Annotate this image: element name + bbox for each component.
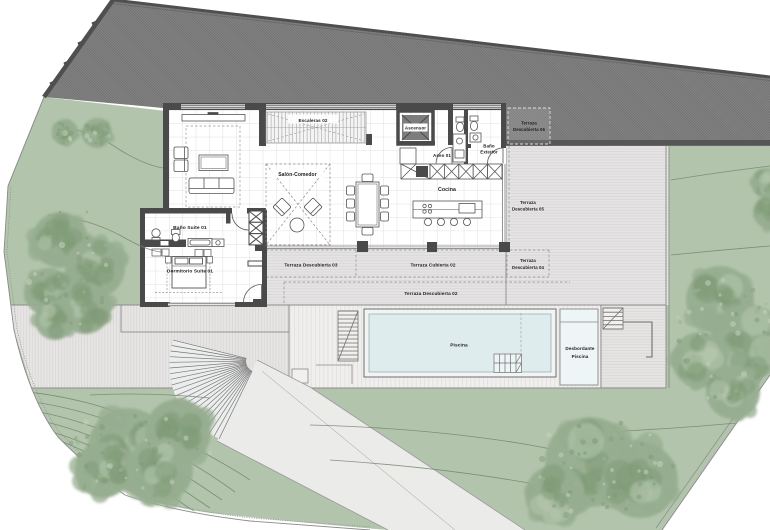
svg-text:Cocina: Cocina <box>438 187 456 193</box>
svg-text:Terraza: Terraza <box>520 200 536 205</box>
svg-text:Aseo 01: Aseo 01 <box>433 153 451 158</box>
svg-text:Baño: Baño <box>483 144 495 149</box>
svg-text:Terraza: Terraza <box>520 258 536 263</box>
svg-text:Descubierta 06: Descubierta 06 <box>513 127 545 132</box>
svg-text:Baño Suite 01: Baño Suite 01 <box>173 225 207 231</box>
svg-text:Descubierta 04: Descubierta 04 <box>512 265 544 270</box>
svg-text:Escaleras 02: Escaleras 02 <box>298 118 327 123</box>
svg-text:Terraza Cubierta 02: Terraza Cubierta 02 <box>410 263 455 268</box>
svg-text:Descubierta 05: Descubierta 05 <box>512 207 544 212</box>
svg-text:Terraza Descubierta 03: Terraza Descubierta 03 <box>284 263 337 268</box>
svg-text:Terraza: Terraza <box>521 121 537 126</box>
svg-text:Dormitorio Suite 01: Dormitorio Suite 01 <box>167 269 213 275</box>
svg-text:Ascensor: Ascensor <box>405 126 426 131</box>
svg-text:Terraza Descubierta 02: Terraza Descubierta 02 <box>404 291 457 296</box>
svg-text:Exterior: Exterior <box>480 150 498 155</box>
svg-text:Desbordante: Desbordante <box>565 346 595 351</box>
svg-text:Piscina: Piscina <box>450 343 468 349</box>
svg-text:Piscina: Piscina <box>572 354 589 359</box>
svg-text:Salón-Comedor: Salón-Comedor <box>278 172 317 178</box>
